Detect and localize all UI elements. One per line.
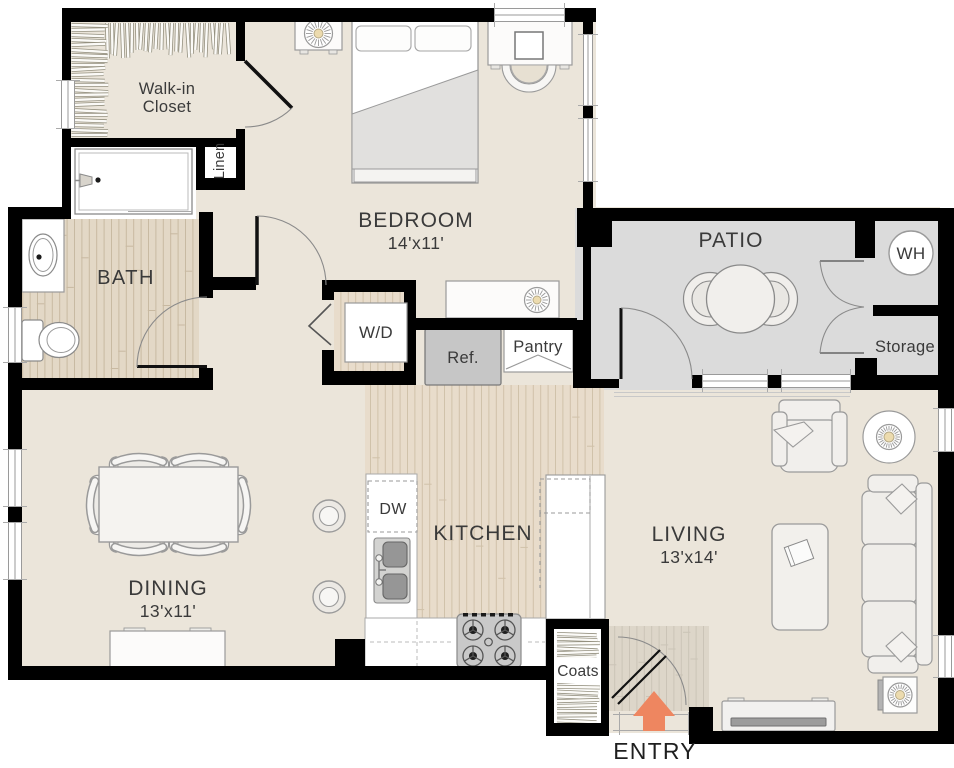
svg-text:DW: DW bbox=[379, 501, 407, 518]
svg-text:Linen: Linen bbox=[212, 143, 228, 179]
svg-text:Storage: Storage bbox=[875, 338, 935, 356]
svg-text:13'x14': 13'x14' bbox=[660, 547, 718, 567]
svg-text:ENTRY: ENTRY bbox=[613, 738, 697, 764]
svg-text:13'x11': 13'x11' bbox=[140, 601, 197, 621]
svg-text:PATIO: PATIO bbox=[699, 229, 764, 252]
svg-text:LIVING: LIVING bbox=[652, 523, 727, 546]
svg-text:Walk-in: Walk-in bbox=[139, 80, 196, 98]
svg-text:W/D: W/D bbox=[359, 323, 393, 342]
svg-text:Ref.: Ref. bbox=[447, 349, 478, 367]
svg-text:WH: WH bbox=[897, 244, 926, 263]
svg-text:DINING: DINING bbox=[128, 577, 208, 600]
svg-text:Closet: Closet bbox=[143, 98, 192, 116]
svg-text:14'x11': 14'x11' bbox=[388, 233, 445, 253]
svg-text:BATH: BATH bbox=[97, 267, 155, 289]
svg-text:Pantry: Pantry bbox=[513, 338, 563, 356]
svg-text:BEDROOM: BEDROOM bbox=[358, 209, 474, 232]
svg-text:KITCHEN: KITCHEN bbox=[433, 522, 532, 545]
svg-text:Coats: Coats bbox=[557, 663, 599, 680]
